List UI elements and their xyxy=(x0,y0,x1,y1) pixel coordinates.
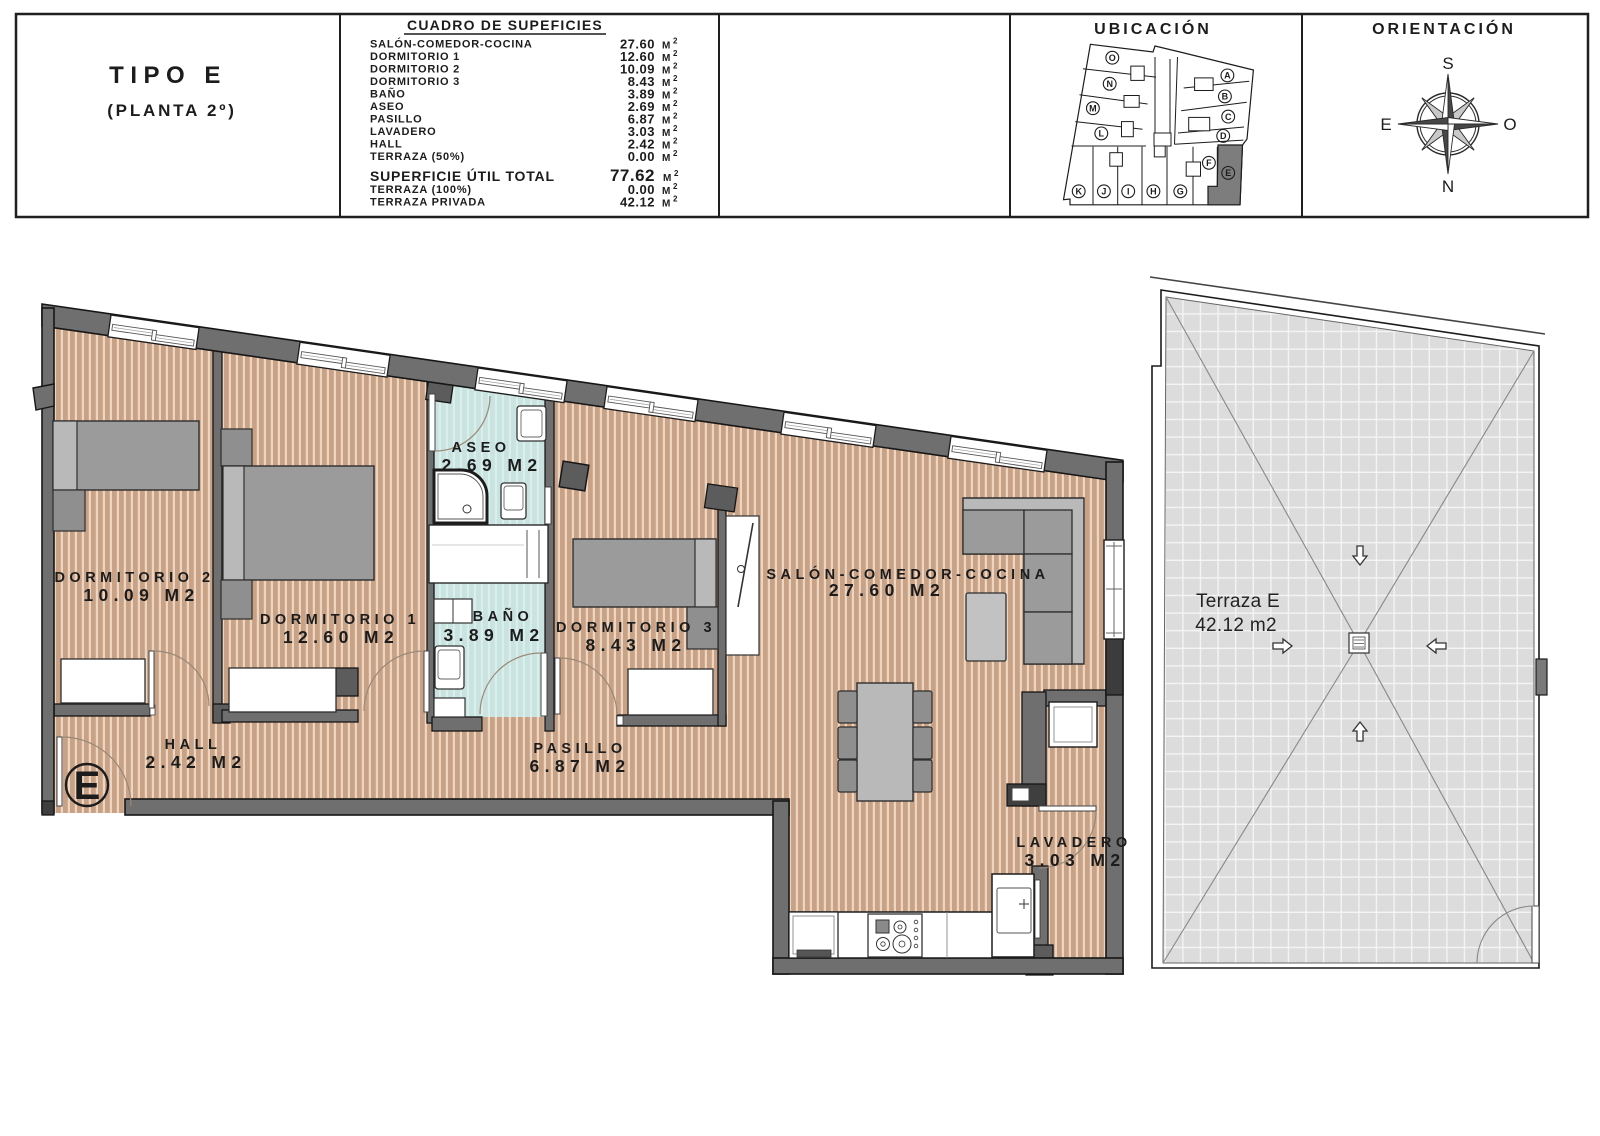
svg-text:42.12 m2: 42.12 m2 xyxy=(1195,615,1277,636)
svg-text:2: 2 xyxy=(673,87,678,96)
svg-text:TIPO E: TIPO E xyxy=(109,62,227,89)
svg-text:HALL: HALL xyxy=(165,737,222,753)
svg-text:2: 2 xyxy=(673,99,678,108)
svg-text:ASEO: ASEO xyxy=(370,101,404,113)
svg-text:E: E xyxy=(1380,115,1391,134)
svg-text:M: M xyxy=(663,173,671,184)
svg-text:2: 2 xyxy=(673,62,678,71)
svg-text:N: N xyxy=(1442,177,1454,196)
svg-text:M: M xyxy=(662,186,670,197)
svg-text:H: H xyxy=(1150,187,1157,197)
svg-text:27.60 M2: 27.60 M2 xyxy=(829,580,945,600)
svg-text:2: 2 xyxy=(673,37,678,46)
svg-text:B: B xyxy=(1222,92,1229,102)
svg-text:TERRAZA PRIVADA: TERRAZA PRIVADA xyxy=(370,197,486,209)
svg-text:CUADRO DE SUPEFICIES: CUADRO DE SUPEFICIES xyxy=(407,17,603,33)
svg-text:E: E xyxy=(74,764,101,808)
svg-text:HALL: HALL xyxy=(370,139,403,151)
svg-text:TERRAZA (100%): TERRAZA (100%) xyxy=(370,184,472,196)
svg-text:M: M xyxy=(662,53,670,64)
svg-text:2: 2 xyxy=(674,169,679,178)
svg-text:N: N xyxy=(1106,79,1113,89)
svg-text:LAVADERO: LAVADERO xyxy=(370,126,437,138)
svg-text:2.69 M2: 2.69 M2 xyxy=(441,455,542,475)
svg-text:8.43 M2: 8.43 M2 xyxy=(585,635,686,655)
svg-text:2: 2 xyxy=(673,124,678,133)
svg-text:F: F xyxy=(1206,158,1212,168)
svg-text:A: A xyxy=(1224,71,1231,81)
svg-text:SUPERFICIE ÚTIL TOTAL: SUPERFICIE ÚTIL TOTAL xyxy=(370,167,555,184)
svg-text:M: M xyxy=(662,153,670,164)
svg-text:BAÑO: BAÑO xyxy=(370,88,406,101)
svg-text:0.00: 0.00 xyxy=(628,149,655,164)
svg-text:DORMITORIO 2: DORMITORIO 2 xyxy=(54,570,214,586)
svg-text:DORMITORIO 2: DORMITORIO 2 xyxy=(370,64,460,76)
svg-text:SALÓN-COMEDOR-COCINA: SALÓN-COMEDOR-COCINA xyxy=(370,38,533,51)
svg-text:M: M xyxy=(662,103,670,114)
svg-text:G: G xyxy=(1177,187,1184,197)
svg-text:M: M xyxy=(662,141,670,152)
svg-text:2: 2 xyxy=(673,112,678,121)
svg-text:O: O xyxy=(1109,53,1116,63)
svg-text:O: O xyxy=(1503,115,1516,134)
svg-text:42.12: 42.12 xyxy=(620,195,655,210)
svg-text:M: M xyxy=(662,66,670,77)
svg-text:10.09 M2: 10.09 M2 xyxy=(83,585,199,605)
svg-text:TERRAZA (50%): TERRAZA (50%) xyxy=(370,151,465,163)
svg-text:M: M xyxy=(662,116,670,127)
svg-text:PASILLO: PASILLO xyxy=(533,741,626,757)
svg-text:ASEO: ASEO xyxy=(451,440,510,456)
svg-text:(PLANTA 2º): (PLANTA 2º) xyxy=(107,101,237,120)
svg-text:C: C xyxy=(1225,112,1232,122)
svg-text:DORMITORIO 1: DORMITORIO 1 xyxy=(260,612,420,628)
svg-text:S: S xyxy=(1442,54,1453,73)
svg-text:2: 2 xyxy=(673,149,678,158)
svg-text:DORMITORIO 3: DORMITORIO 3 xyxy=(370,76,460,88)
svg-text:LAVADERO: LAVADERO xyxy=(1016,835,1131,851)
svg-text:D: D xyxy=(1220,131,1227,141)
svg-text:UBICACIÓN: UBICACIÓN xyxy=(1094,19,1212,38)
svg-text:DORMITORIO 3: DORMITORIO 3 xyxy=(556,620,716,636)
svg-text:PASILLO: PASILLO xyxy=(370,114,422,126)
svg-text:M: M xyxy=(662,78,670,89)
svg-text:2: 2 xyxy=(673,182,678,191)
svg-text:3.89 M2: 3.89 M2 xyxy=(443,625,544,645)
svg-text:2: 2 xyxy=(673,74,678,83)
svg-text:J: J xyxy=(1101,187,1106,197)
svg-text:2: 2 xyxy=(673,49,678,58)
svg-text:BAÑO: BAÑO xyxy=(473,607,534,625)
svg-text:L: L xyxy=(1099,129,1105,139)
svg-text:2.42 M2: 2.42 M2 xyxy=(145,752,246,772)
svg-text:M: M xyxy=(662,199,670,210)
svg-text:M: M xyxy=(662,128,670,139)
svg-text:2: 2 xyxy=(673,195,678,204)
svg-text:ORIENTACIÓN: ORIENTACIÓN xyxy=(1372,19,1516,38)
svg-text:3.03 M2: 3.03 M2 xyxy=(1024,850,1125,870)
svg-text:I: I xyxy=(1127,187,1130,197)
svg-text:M: M xyxy=(662,41,670,52)
svg-text:2: 2 xyxy=(673,137,678,146)
svg-text:E: E xyxy=(1225,168,1231,178)
svg-text:M: M xyxy=(662,91,670,102)
svg-text:12.60 M2: 12.60 M2 xyxy=(283,627,399,647)
svg-text:Terraza E: Terraza E xyxy=(1196,591,1280,612)
svg-text:K: K xyxy=(1075,187,1082,197)
svg-text:M: M xyxy=(1089,103,1097,113)
svg-text:6.87 M2: 6.87 M2 xyxy=(529,756,630,776)
svg-text:DORMITORIO 1: DORMITORIO 1 xyxy=(370,51,460,63)
